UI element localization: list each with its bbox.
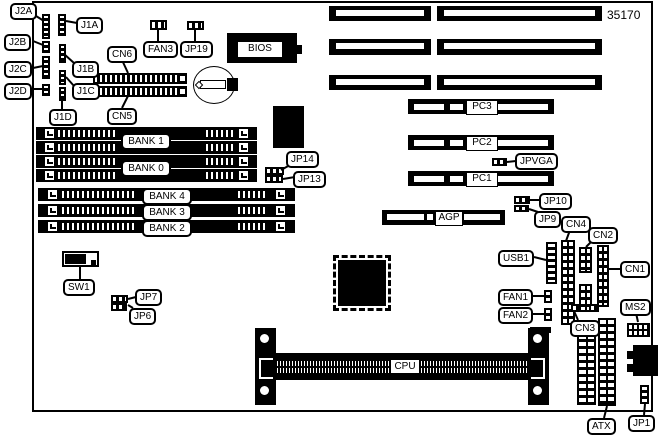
label-jp6: JP6	[129, 308, 156, 325]
label-fan2: FAN2	[498, 307, 533, 324]
label-jp9: JP9	[534, 211, 561, 228]
label-sw1: SW1	[63, 279, 95, 296]
part-number: 35170	[607, 8, 640, 22]
label-fan1: FAN1	[498, 289, 533, 306]
label-jp7: JP7	[135, 289, 162, 306]
label-cn4: CN4	[561, 216, 591, 233]
label-j2b: J2B	[4, 34, 31, 51]
label-j1c: J1C	[72, 83, 100, 100]
label-cn1: CN1	[620, 261, 650, 278]
motherboard-diagram: 35170 PC3 PC2 PC1 AGP BIOS	[0, 0, 659, 437]
label-jp19: JP19	[180, 41, 213, 58]
label-usb1: USB1	[498, 250, 534, 267]
label-j2c: J2C	[4, 61, 32, 78]
label-jp13: JP13	[293, 171, 326, 188]
label-jp1: JP1	[628, 415, 655, 432]
label-jp14: JP14	[286, 151, 319, 168]
label-atx: ATX	[587, 418, 616, 435]
label-jp10: JP10	[539, 193, 572, 210]
label-j2a: J2A	[10, 3, 37, 20]
label-cn2: CN2	[588, 227, 618, 244]
label-j2d: J2D	[4, 83, 32, 100]
label-jpvga: JPVGA	[515, 153, 558, 170]
label-j1a: J1A	[76, 17, 103, 34]
label-cn5: CN5	[107, 108, 137, 125]
label-cn3: CN3	[570, 320, 600, 337]
label-j1d: J1D	[49, 109, 77, 126]
label-cn6: CN6	[107, 46, 137, 63]
label-fan3: FAN3	[143, 41, 178, 58]
label-j1b: J1B	[72, 61, 99, 78]
label-ms2: MS2	[620, 299, 651, 316]
